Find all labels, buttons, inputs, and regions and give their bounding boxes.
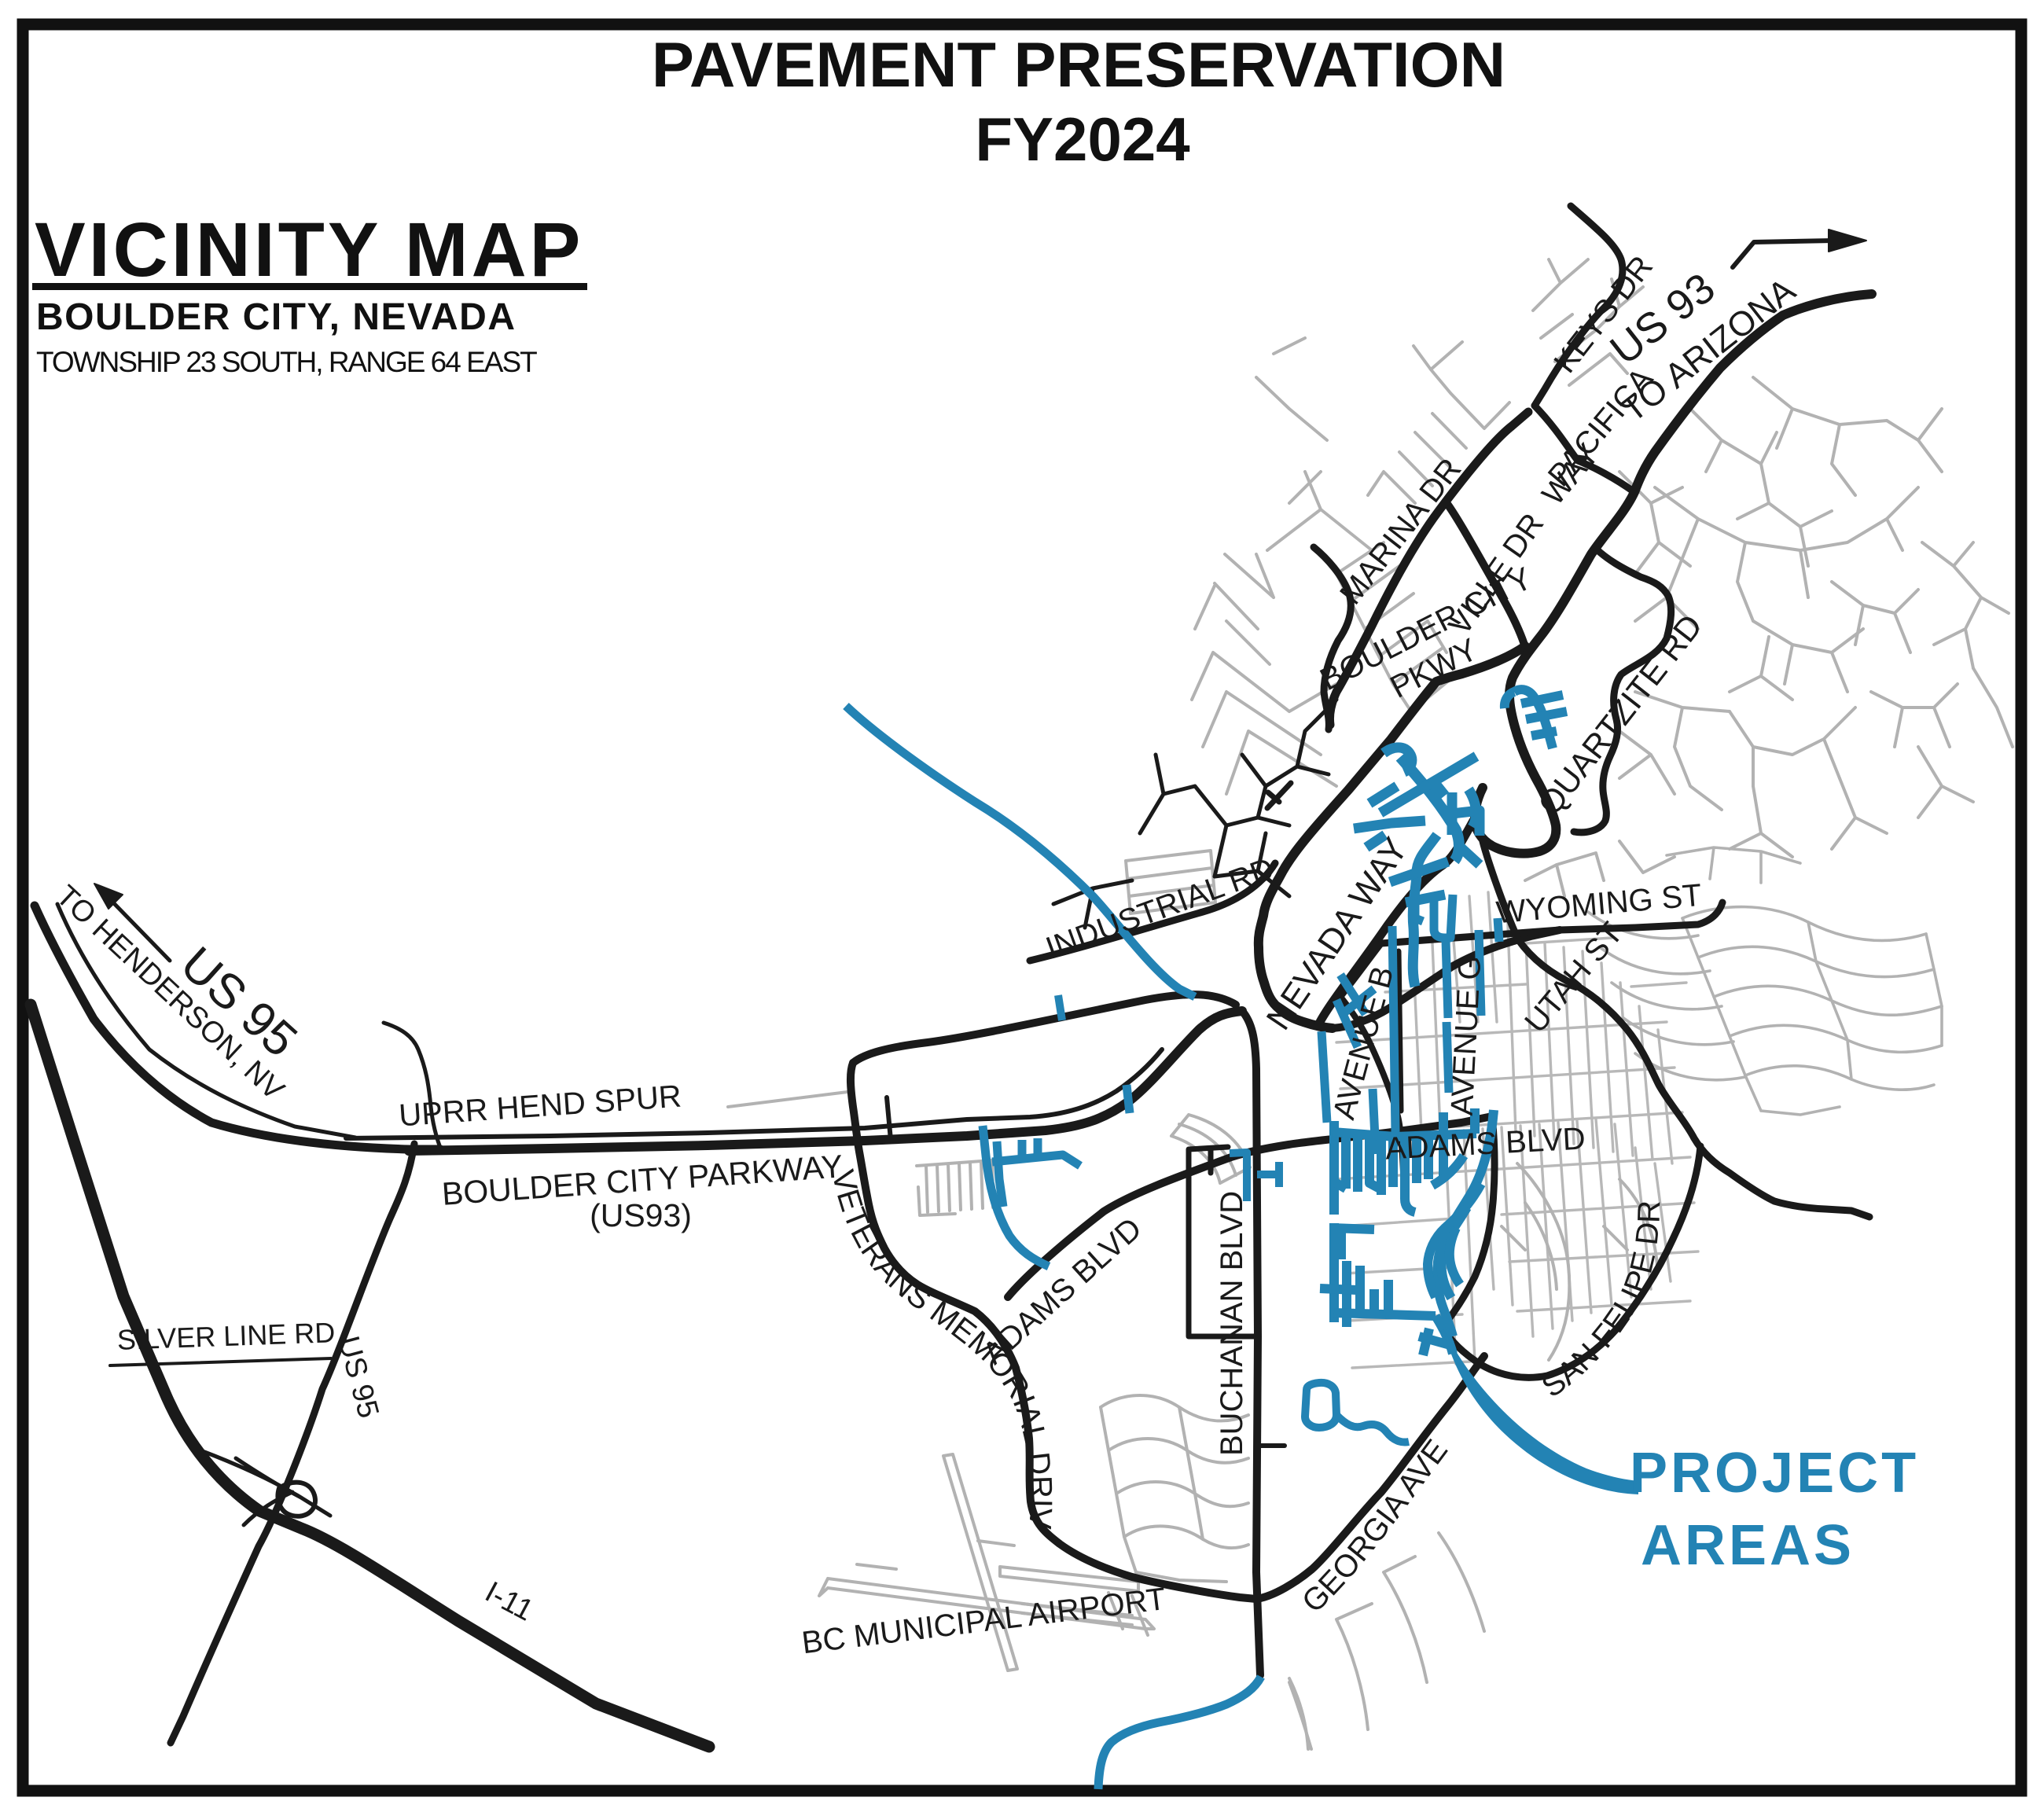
- svg-text:AREAS: AREAS: [1641, 1514, 1855, 1577]
- svg-text:BOULDER CITY, NEVADA: BOULDER CITY, NEVADA: [36, 296, 516, 338]
- svg-text:PROJECT: PROJECT: [1630, 1442, 1919, 1505]
- svg-text:VICINITY MAP: VICINITY MAP: [35, 207, 583, 292]
- svg-text:TOWNSHIP 23 SOUTH, RANGE 64 EA: TOWNSHIP 23 SOUTH, RANGE 64 EAST: [36, 346, 537, 378]
- svg-text:PAVEMENT PRESERVATION: PAVEMENT PRESERVATION: [652, 30, 1505, 101]
- svg-text:BUCHANAN BLVD: BUCHANAN BLVD: [1215, 1191, 1249, 1456]
- svg-text:(US93): (US93): [590, 1197, 692, 1233]
- svg-text:FY2024: FY2024: [975, 105, 1189, 174]
